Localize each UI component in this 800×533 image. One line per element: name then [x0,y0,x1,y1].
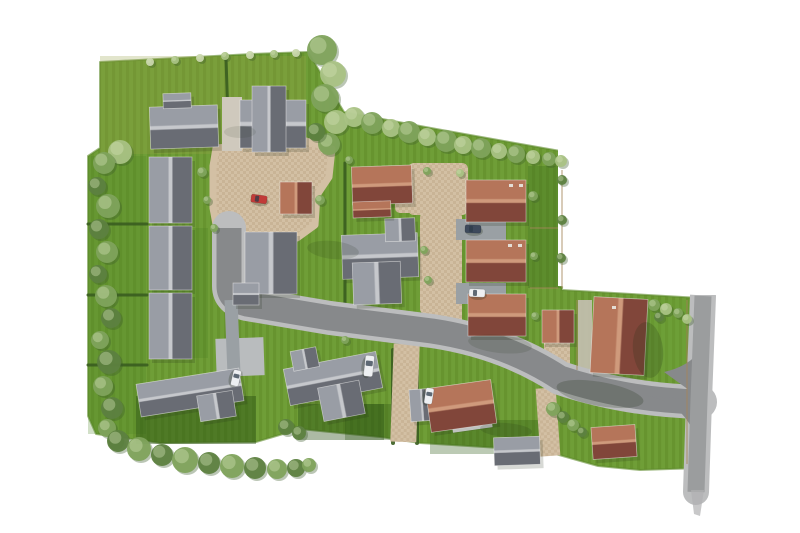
tree-highlight [103,310,114,321]
mid-court-spine [420,212,462,314]
tree-highlight [98,243,110,255]
tree-highlight [97,287,109,299]
tree-highlight [425,277,429,281]
east-red-3 [468,294,529,340]
tree-highlight [93,332,103,342]
tree-highlight [109,432,121,444]
north-red-1-roof [351,165,412,205]
tree-highlight [172,57,176,61]
tree-highlight [323,63,337,77]
se-red-roof [591,425,637,460]
tree-highlight [289,460,299,470]
bungalow-roof [197,390,237,421]
tree-highlight [110,142,123,155]
tree-highlight [661,304,668,311]
tree-highlight [424,168,428,172]
tree-highlight [293,427,301,435]
terrace-2 [149,226,195,294]
tree-highlight [91,221,102,232]
tree-highlight [363,114,375,126]
tree-highlight [557,254,563,260]
tree-highlight [558,216,564,222]
east-red-2-roof [466,240,526,282]
tree-highlight [197,55,201,59]
van-white-windshield [366,360,374,366]
existing-road [696,296,703,492]
court-garage-roof [280,182,312,214]
tree-highlight [153,446,165,458]
tree-highlight [103,399,115,411]
tree-highlight [342,337,346,341]
chimney [518,244,522,247]
center-house-roof [352,261,401,305]
chimney [519,184,523,187]
boundary-notch [558,142,748,295]
north-red-1-roof [353,201,392,218]
car-red-windshield [255,195,260,201]
tree-highlight [211,225,215,229]
tree-highlight [200,454,212,466]
right-cottage-roof [542,310,574,343]
north-stub-path [222,97,242,151]
chimney [508,244,512,247]
tree-highlight [310,37,327,54]
tree-highlight [198,168,204,174]
chimney [612,306,616,309]
tree-highlight [98,196,111,209]
tree-highlight [509,146,519,156]
car-dark-windshield [469,226,473,232]
tree-highlight [247,52,251,56]
development-siteplan-render [0,0,800,533]
tree-highlight [437,132,449,144]
tree-highlight [421,247,425,251]
tree-highlight [674,309,680,315]
court-garage [280,182,315,218]
tree-highlight [271,51,275,55]
right-house-path [578,300,592,372]
tree-highlight [568,420,575,427]
tree-highlight [129,439,142,452]
plot-house-1-roof [149,105,218,149]
right-cottage [542,310,577,347]
tree-highlight [529,192,535,198]
van-white [363,355,374,377]
tree-highlight [91,266,101,276]
west-drive [231,300,234,374]
tree-highlight [326,112,339,125]
tree-highlight [95,154,107,166]
plot-house-2-roof [252,86,286,152]
tree-highlight [655,313,661,319]
tree-highlight [269,461,280,472]
tree-highlight [346,109,357,120]
tree-highlight [90,178,100,188]
center-house-roof [385,218,416,242]
tree-highlight [95,378,106,389]
tree-highlight [100,420,110,430]
tree-highlight [99,352,112,365]
tree-highlight [222,456,235,469]
tree-highlight [473,140,484,151]
tree-highlight [683,315,689,321]
tree-highlight [346,157,350,161]
court-house-roof [233,283,259,305]
car-white-1 [469,289,485,298]
south-house-3 [494,436,544,470]
tree-highlight [493,144,502,153]
south-house-3-roof [494,436,541,466]
tree-highlight [531,253,535,257]
east-garden-dark [528,166,562,288]
car-white-1-windshield [473,290,477,296]
tree-highlight [556,156,563,163]
tree-highlight [314,86,329,101]
tree-highlight [384,120,394,130]
terrace-3 [149,293,195,363]
tree-highlight [280,420,289,429]
tree-highlight [175,449,189,463]
tree-highlight [246,459,258,471]
tree-highlight [420,129,430,139]
tree-highlight [527,151,535,159]
east-red-3-roof [468,294,526,336]
terrace-2-roof [149,226,192,290]
east-red-1-roof [466,180,526,222]
tree-highlight [293,50,297,54]
car-dark [465,225,481,234]
tree-highlight [309,124,319,134]
tree-highlight [558,412,565,419]
tree-highlight [543,153,551,161]
terrace-1-roof [149,157,192,223]
tree-highlight [316,196,322,202]
tree-highlight [147,59,151,63]
tree-highlight [222,53,226,57]
terrace-1 [149,157,195,227]
tree-highlight [649,300,656,307]
plot-house-1-roof [163,93,192,109]
chimney [509,184,513,187]
tree-highlight [547,403,555,411]
cast-shadow [224,126,256,138]
tree-highlight [532,313,536,317]
se-red [591,424,640,463]
tree-highlight [457,170,461,174]
tree-highlight [558,176,564,182]
tree-highlight [400,123,412,135]
tree-highlight [303,459,311,467]
tree-highlight [204,197,208,201]
terrace-3-roof [149,293,192,359]
siteplan-svg [0,0,800,533]
tree-highlight [456,137,466,147]
tree-highlight [578,428,584,434]
